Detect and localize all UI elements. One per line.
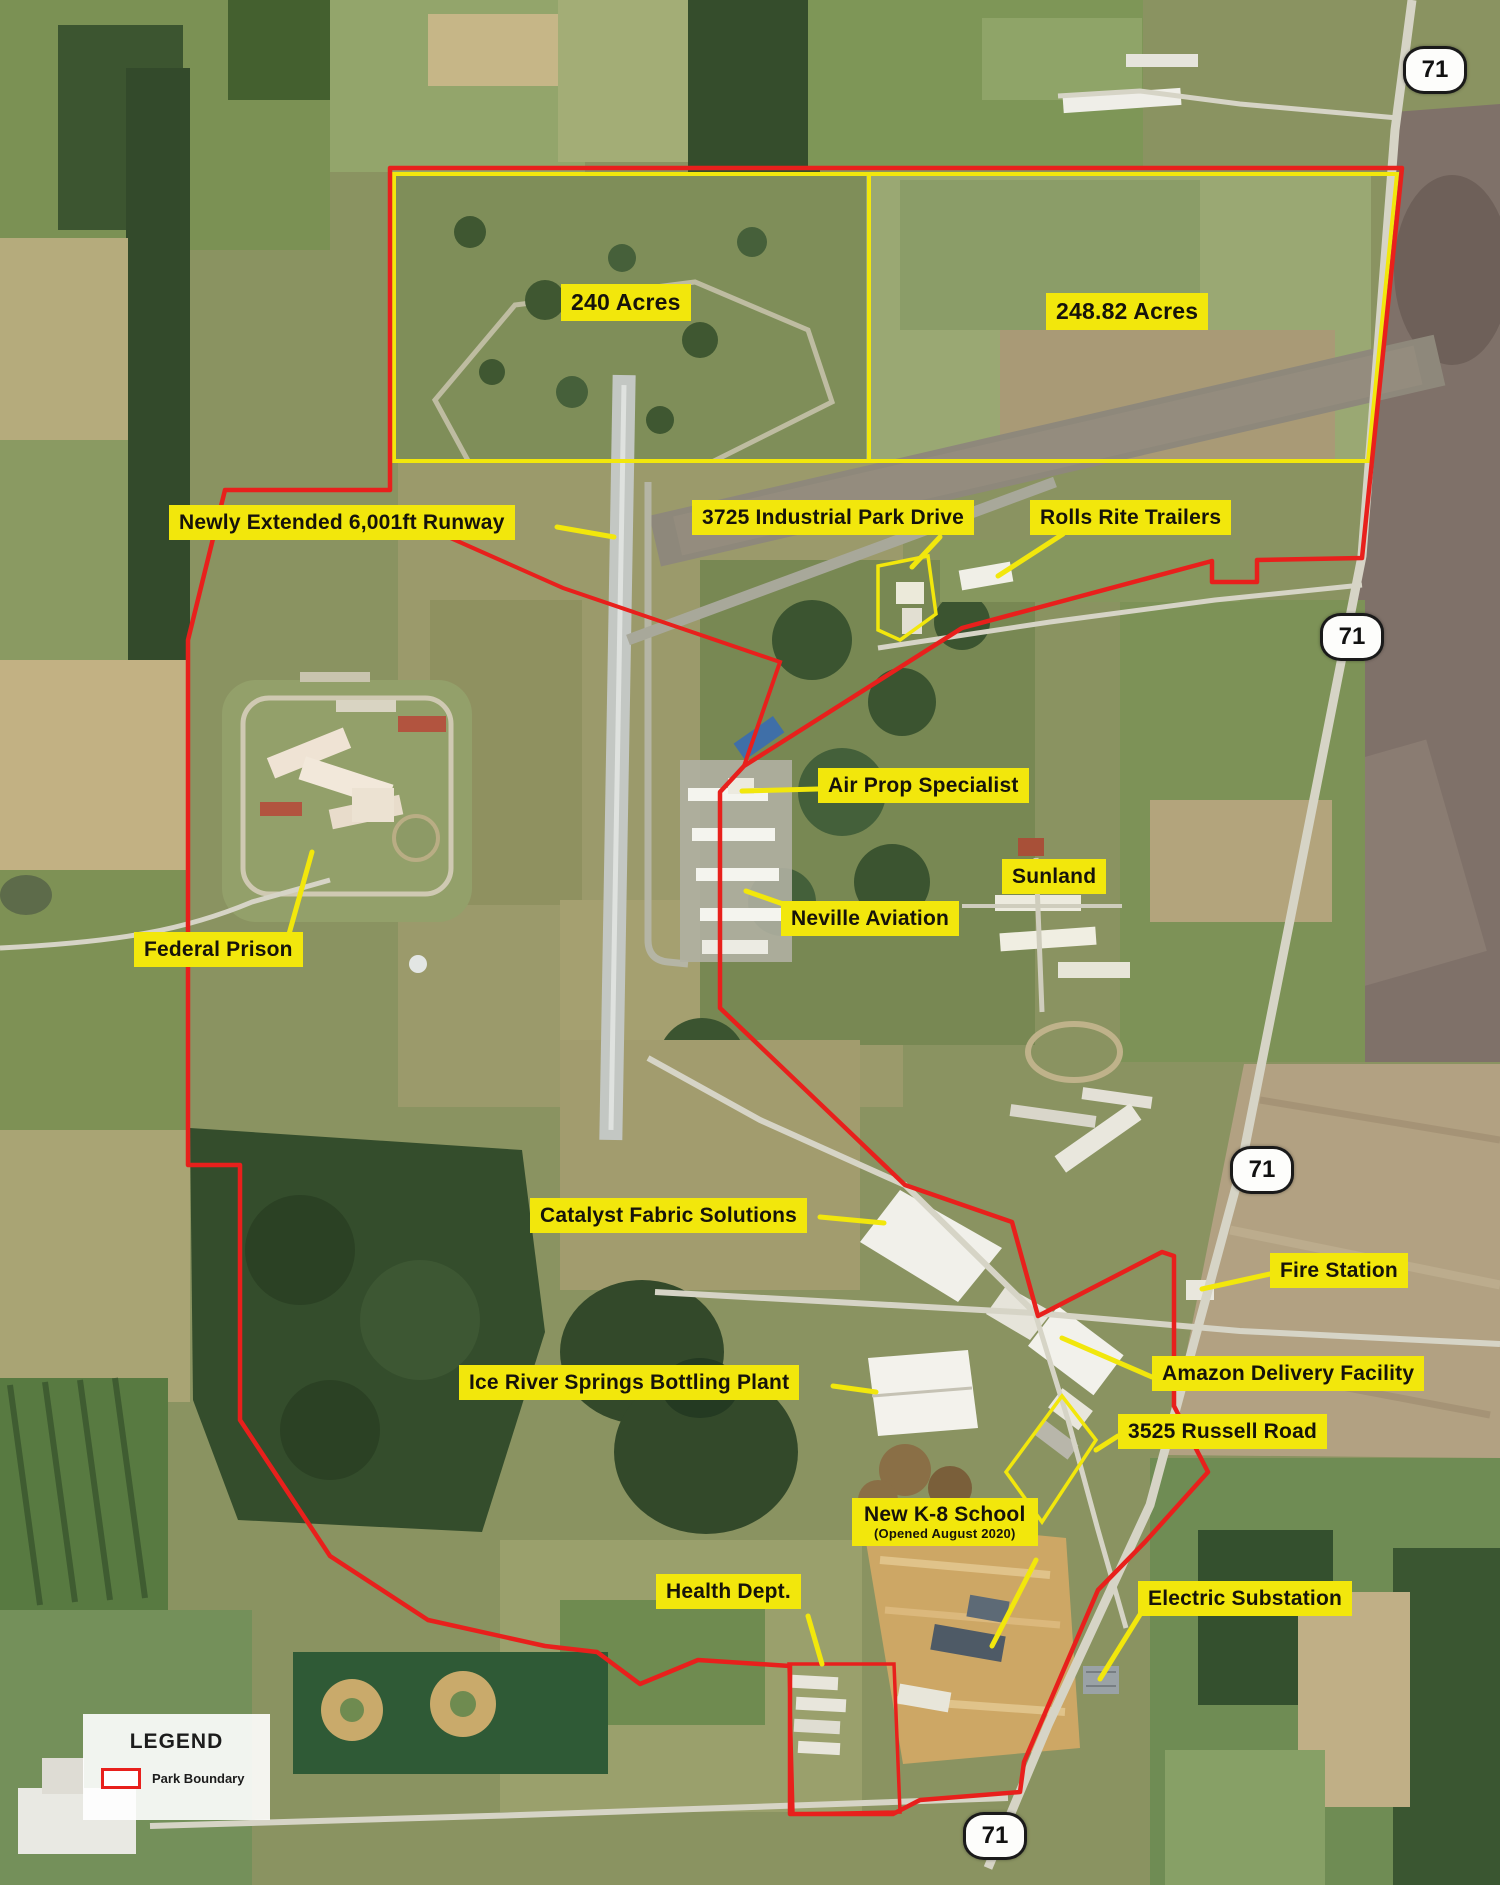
label-ice-river-springs: Ice River Springs Bottling Plant [459,1365,799,1400]
industrial-park-aerial-map: 240 Acres 248.82 Acres Newly Extended 6,… [0,0,1500,1885]
highway-71-shield-mid: 71 [1320,613,1384,661]
label-health-dept: Health Dept. [656,1574,801,1609]
legend-item-park-boundary: Park Boundary [101,1768,270,1789]
label-new-k8-school-title: New K-8 School [864,1503,1026,1526]
legend-item-label: Park Boundary [152,1771,244,1786]
highway-71-shield-lower: 71 [1230,1146,1294,1194]
park-boundary-swatch-icon [101,1768,141,1789]
label-sunland: Sunland [1002,859,1106,894]
water-tower [409,955,427,973]
legend-title: LEGEND [83,1730,270,1754]
label-runway: Newly Extended 6,001ft Runway [169,505,515,540]
label-3525-russell-road: 3525 Russell Road [1118,1414,1327,1449]
label-fire-station: Fire Station [1270,1253,1408,1288]
label-amazon-delivery-facility: Amazon Delivery Facility [1152,1356,1424,1391]
label-new-k8-school-subtitle: (Opened August 2020) [864,1527,1026,1541]
label-neville-aviation: Neville Aviation [781,901,959,936]
label-air-prop-specialist: Air Prop Specialist [818,768,1029,803]
orchard [0,1378,168,1610]
label-catalyst-fabric-solutions: Catalyst Fabric Solutions [530,1198,807,1233]
label-rolls-rite-trailers: Rolls Rite Trailers [1030,500,1231,535]
legend: LEGEND Park Boundary [83,1714,270,1820]
ballfields [293,1652,608,1774]
highway-71-shield-top: 71 [1403,46,1467,94]
ice-river-building [868,1350,978,1436]
label-248-acres: 248.82 Acres [1046,293,1208,330]
label-federal-prison: Federal Prison [134,932,303,967]
label-3725-industrial-park-drive: 3725 Industrial Park Drive [692,500,974,535]
label-electric-substation: Electric Substation [1138,1581,1352,1616]
label-new-k8-school: New K-8 School (Opened August 2020) [852,1498,1038,1546]
highway-71-shield-bottom: 71 [963,1812,1027,1860]
label-240-acres: 240 Acres [561,284,691,321]
